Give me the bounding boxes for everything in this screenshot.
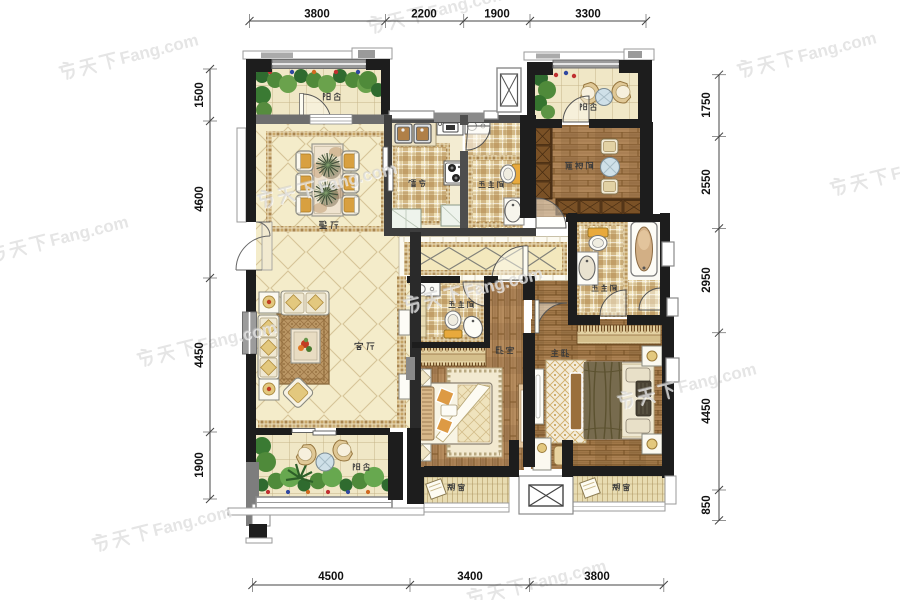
svg-text:4500: 4500 bbox=[318, 571, 344, 583]
svg-text:1900: 1900 bbox=[194, 452, 206, 478]
svg-text:3300: 3300 bbox=[575, 9, 601, 21]
svg-text:4450: 4450 bbox=[701, 398, 713, 424]
svg-text:1500: 1500 bbox=[194, 82, 206, 108]
svg-text:3800: 3800 bbox=[584, 571, 610, 583]
svg-text:1750: 1750 bbox=[701, 92, 713, 118]
svg-text:850: 850 bbox=[701, 495, 713, 514]
svg-text:2550: 2550 bbox=[701, 169, 713, 195]
svg-text:3800: 3800 bbox=[304, 9, 330, 21]
svg-text:1900: 1900 bbox=[484, 9, 510, 21]
svg-text:2950: 2950 bbox=[701, 267, 713, 293]
svg-text:3400: 3400 bbox=[457, 571, 483, 583]
svg-text:4450: 4450 bbox=[194, 342, 206, 368]
svg-text:4600: 4600 bbox=[194, 186, 206, 212]
svg-text:2200: 2200 bbox=[411, 9, 437, 21]
